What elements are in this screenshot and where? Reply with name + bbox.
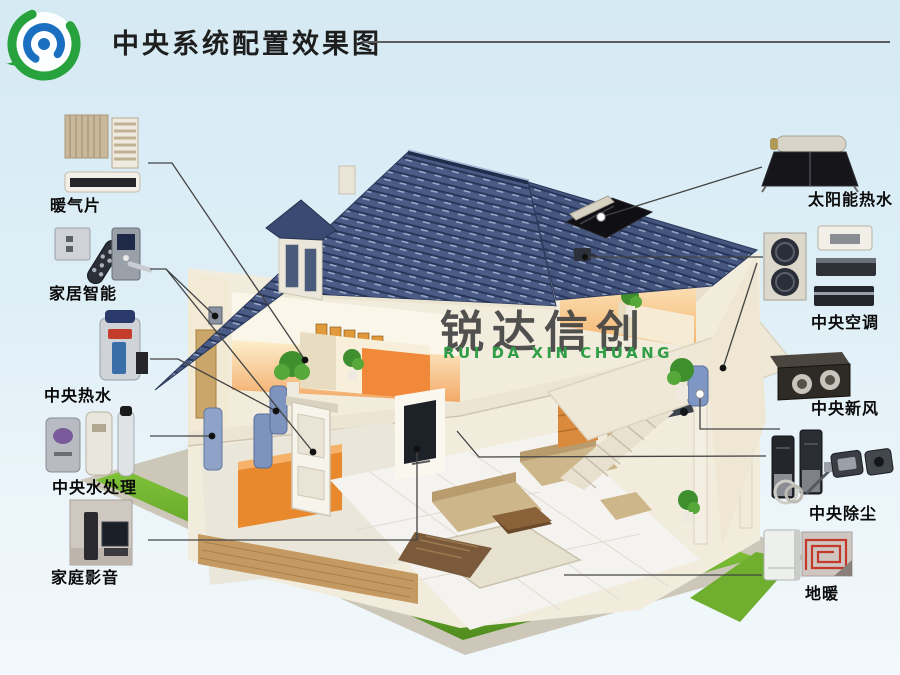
title-rule [362,41,890,43]
fresh-air-icon [770,352,850,400]
solar-water-heater-icon [762,136,858,192]
central-vacuum-icon [772,430,894,503]
central-ac-icon [764,226,876,306]
entry-device-2 [254,414,272,468]
label-central-ac: 中央空调 [811,309,879,333]
radiator-icon [65,115,140,192]
label-radiator: 暖气片 [50,192,101,216]
label-fresh-air: 中央新风 [811,395,879,419]
floor-heating-icon [764,530,852,580]
water-treatment-icon [46,406,134,476]
label-water-treatment: 中央水处理 [52,474,137,498]
watermark-brand-pinyin: RUI DA XIN CHUANG [443,344,673,362]
label-home-theater: 家庭影音 [51,564,119,588]
chimney [339,166,355,194]
water-heater-icon [100,310,148,380]
central-system-diagram: 锐达信创 RUI DA XIN CHUANG 中央系统配置效果图 暖气片 家居智… [0,0,900,675]
tv [404,400,436,464]
home-theater-icon [70,500,132,565]
page-title: 中央系统配置效果图 [112,22,382,61]
label-smart-home: 家居智能 [49,280,117,304]
label-central-vacuum: 中央除尘 [809,500,877,524]
brand-logo-icon [0,0,88,88]
smart-home-icon [55,228,150,287]
label-central-hot-water: 中央热水 [44,382,112,406]
line-solar [601,167,762,217]
label-floor-heating: 地暖 [805,580,839,604]
label-solar-hot-water: 太阳能热水 [808,186,893,210]
